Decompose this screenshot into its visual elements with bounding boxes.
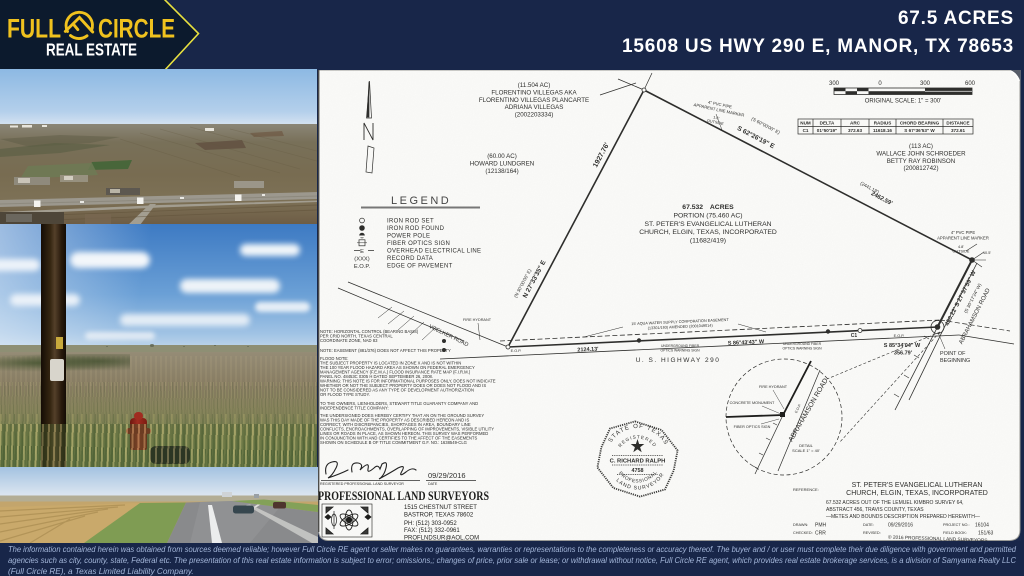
- svg-text:(Full Circle RE), a Texas Limi: (Full Circle RE), a Texas Limited Liabil…: [8, 567, 194, 576]
- svg-text:10.5': 10.5': [983, 251, 991, 255]
- svg-text:(11.504 AC): (11.504 AC): [518, 82, 551, 89]
- svg-text:The information contained here: The information contained herein was obt…: [8, 545, 1016, 554]
- svg-text:(12138/164): (12138/164): [485, 168, 518, 175]
- svg-text:OPTICS WARNING SIGN: OPTICS WARNING SIGN: [782, 347, 822, 351]
- svg-text:EDGE OF PAVEMENT: EDGE OF PAVEMENT: [387, 264, 453, 270]
- svg-text:(XXX): (XXX): [354, 257, 370, 263]
- svg-text:E: E: [360, 249, 364, 255]
- svg-text:356.79': 356.79': [894, 351, 913, 357]
- svg-text:(11682/419): (11682/419): [690, 238, 726, 245]
- svg-text:agencies such as city, county,: agencies such as city, county, state, Fe…: [8, 556, 1016, 565]
- svg-text:CHECKED:: CHECKED:: [793, 531, 813, 535]
- svg-text:372.61: 372.61: [951, 128, 965, 133]
- svg-text:UNDERGROUND FIBER: UNDERGROUND FIBER: [661, 344, 700, 348]
- svg-text:DATE:: DATE:: [863, 523, 874, 527]
- svg-text:(60.00 AC): (60.00 AC): [487, 153, 517, 160]
- svg-text:PMH: PMH: [815, 523, 827, 529]
- svg-text:OR FLOOD TYPE STUDY.: OR FLOOD TYPE STUDY.: [320, 392, 370, 397]
- svg-text:—METES AND BOUNDS DESCRIPTI: —METES AND BOUNDS DESCRIPTION PREPARED H…: [826, 514, 980, 520]
- svg-text:APPARENT LINE MARKER: APPARENT LINE MARKER: [937, 236, 989, 241]
- svg-text:IRON ROD SET: IRON ROD SET: [387, 219, 434, 225]
- svg-text:4758: 4758: [632, 468, 644, 474]
- svg-text:ABSTRACT 456, TRAVIS COUNTY: ABSTRACT 456, TRAVIS COUNTY, TEXAS: [826, 507, 924, 513]
- svg-text:CRR: CRR: [815, 531, 826, 537]
- svg-text:FIRE HYDRANT: FIRE HYDRANT: [463, 318, 492, 322]
- svg-text:(2002203334): (2002203334): [515, 112, 554, 119]
- svg-text:BEGINNING: BEGINNING: [940, 358, 970, 364]
- svg-text:BETTY RAY ROBINSON: BETTY RAY ROBINSON: [887, 158, 955, 165]
- svg-text:16104: 16104: [975, 523, 989, 529]
- svg-text:POINT OF: POINT OF: [940, 351, 966, 357]
- svg-text:ADRIANA VILLEGAS: ADRIANA VILLEGAS: [505, 104, 564, 111]
- svg-text:REVISED:: REVISED:: [863, 531, 881, 535]
- svg-text:OPTICS WARNING SIGN: OPTICS WARNING SIGN: [660, 349, 700, 353]
- svg-text:IRON ROD FOUND: IRON ROD FOUND: [387, 226, 445, 232]
- svg-text:RECORD DATA: RECORD DATA: [387, 256, 433, 262]
- svg-text:372.63: 372.63: [848, 128, 862, 133]
- svg-text:DATE: DATE: [428, 482, 438, 486]
- svg-text:300: 300: [920, 81, 931, 87]
- svg-text:11618.16: 11618.16: [873, 128, 892, 133]
- svg-text:FIBER OPTICS SIGN: FIBER OPTICS SIGN: [387, 241, 450, 247]
- svg-text:SHOWN ON SCHEDULE B OF TI: SHOWN ON SCHEDULE B OF TITLE COMMITMENT …: [320, 440, 467, 445]
- svg-text:(200812742): (200812742): [903, 165, 938, 172]
- svg-text:BASTROP, TEXAS 78602: BASTROP, TEXAS 78602: [404, 513, 474, 519]
- svg-text:DISTANCE: DISTANCE: [946, 121, 969, 126]
- svg-text:E.O.P.: E.O.P.: [894, 334, 905, 338]
- svg-text:COORDINATE ZONE, NAD 83: COORDINATE ZONE, NAD 83: [320, 338, 378, 343]
- svg-text:CHURCH, ELGIN, TEXAS, INCOR: CHURCH, ELGIN, TEXAS, INCORPORATED: [846, 490, 988, 497]
- svg-text:E.O.P.: E.O.P.: [354, 264, 371, 270]
- svg-text:300: 300: [829, 81, 840, 87]
- svg-text:ST. PETER'S EVANGELICAL LUT: ST. PETER'S EVANGELICAL LUTHERAN: [644, 221, 771, 228]
- svg-text:OUTSIDE: OUTSIDE: [953, 250, 970, 254]
- svg-text:2124.13': 2124.13': [577, 347, 599, 354]
- svg-text:09/29/2016: 09/29/2016: [428, 471, 466, 480]
- svg-text:ARC: ARC: [850, 121, 861, 126]
- svg-text:S 85°34'04" W: S 85°34'04" W: [884, 343, 921, 349]
- svg-text:FIBER OPTICS SIGN: FIBER OPTICS SIGN: [734, 425, 771, 429]
- svg-text:67.532 ACRES: 67.532 ACRES: [682, 204, 734, 211]
- svg-text:NUM: NUM: [800, 121, 811, 126]
- svg-text:1515 CHESTNUT STREET: 1515 CHESTNUT STREET: [404, 505, 477, 511]
- svg-text:FIELD BOOK:: FIELD BOOK:: [943, 531, 967, 535]
- svg-text:09/29/2016: 09/29/2016: [888, 523, 913, 529]
- svg-text:ORIGINAL SCALE: 1" = 300': ORIGINAL SCALE: 1" = 300': [865, 99, 942, 105]
- svg-text:C. RICHARD RALPH: C. RICHARD RALPH: [610, 459, 666, 465]
- svg-text:01°50'19": 01°50'19": [817, 128, 837, 133]
- svg-text:FLORENTINO VILLEGAS PLANCART: FLORENTINO VILLEGAS PLANCARTE: [479, 97, 589, 104]
- svg-text:UNDERGROUND FIBER: UNDERGROUND FIBER: [783, 342, 822, 346]
- svg-text:C1: C1: [803, 128, 809, 133]
- svg-text:CHURCH, ELGIN, TEXAS, INCOR: CHURCH, ELGIN, TEXAS, INCORPORATED: [639, 229, 777, 236]
- svg-text:4" PVC PIPE: 4" PVC PIPE: [951, 230, 976, 235]
- svg-text:67.532 ACRES OUT OF THE L: 67.532 ACRES OUT OF THE LEMUEL KIMBRO SU…: [826, 500, 964, 506]
- svg-text:NOTE: EASEMENT (881/376) DO: NOTE: EASEMENT (881/376) DOES NOT AFFECT…: [320, 348, 451, 353]
- svg-text:WALLACE JOHN SCHROEDER: WALLACE JOHN SCHROEDER: [876, 150, 966, 157]
- svg-text:REAL ESTATE: REAL ESTATE: [46, 40, 137, 60]
- svg-text:PROJECT NO.:: PROJECT NO.:: [943, 523, 970, 527]
- svg-text:FIRE HYDRANT: FIRE HYDRANT: [759, 385, 788, 389]
- svg-text:151/63: 151/63: [978, 531, 994, 537]
- svg-text:CHORD BEARING: CHORD BEARING: [900, 121, 940, 126]
- svg-text:RADIUS: RADIUS: [874, 121, 892, 126]
- svg-text:600: 600: [965, 81, 976, 87]
- svg-text:ST. PETER'S EVANGELICAL LUT: ST. PETER'S EVANGELICAL LUTHERAN: [852, 482, 983, 489]
- svg-text:HOWARD LUNDGREN: HOWARD LUNDGREN: [470, 160, 534, 167]
- svg-text:(113 AC): (113 AC): [909, 143, 933, 150]
- svg-text:FAX: (512) 332-0961: FAX: (512) 332-0961: [404, 528, 460, 534]
- svg-text:FLORENTINO VILLEGAS AKA: FLORENTINO VILLEGAS AKA: [491, 89, 577, 96]
- svg-text:OVERHEAD ELECTRICAL LINE: OVERHEAD ELECTRICAL LINE: [387, 249, 481, 255]
- svg-text:REFERENCE:: REFERENCE:: [793, 487, 819, 492]
- svg-text:U. S. HIGHWAY 290: U. S. HIGHWAY 290: [636, 357, 721, 364]
- svg-text:S 67°36'53" W: S 67°36'53" W: [904, 128, 935, 133]
- svg-text:4.8': 4.8': [958, 245, 964, 249]
- svg-text:POWER POLE: POWER POLE: [387, 234, 430, 240]
- svg-text:PH: (512) 303-0952: PH: (512) 303-0952: [404, 521, 457, 527]
- svg-text:DRAWN:: DRAWN:: [793, 523, 808, 527]
- svg-text:DELTA: DELTA: [820, 121, 835, 126]
- svg-text:E.O.P.: E.O.P.: [511, 349, 522, 353]
- svg-text:SCALE 1" = 40': SCALE 1" = 40': [792, 448, 820, 453]
- svg-text:CONCRETE MONUMENT: CONCRETE MONUMENT: [730, 401, 775, 405]
- svg-text:INDEPENDENCE TITLE COMPANY:: INDEPENDENCE TITLE COMPANY:: [320, 406, 389, 411]
- svg-text:PROFESSIONAL LAND SURVEYORS: PROFESSIONAL LAND SURVEYORS: [318, 489, 489, 503]
- svg-text:PORTION (75.460 AC): PORTION (75.460 AC): [673, 212, 742, 219]
- svg-text:REGISTERED PROFESSIONAL LAND: REGISTERED PROFESSIONAL LAND SURVEYOR: [320, 482, 404, 486]
- svg-text:C1: C1: [851, 333, 858, 339]
- svg-text:LEGEND: LEGEND: [391, 195, 451, 207]
